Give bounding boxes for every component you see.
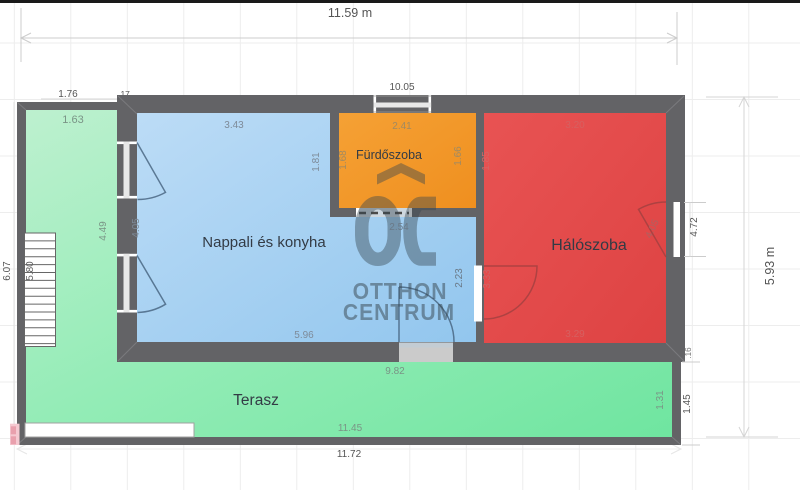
- svg-text:5.96: 5.96: [294, 330, 314, 341]
- svg-text:1.45: 1.45: [682, 394, 693, 414]
- svg-text:.16: .16: [684, 347, 693, 359]
- svg-text:3.29: 3.29: [565, 329, 585, 340]
- svg-text:11.45: 11.45: [338, 423, 363, 434]
- svg-text:5.80: 5.80: [25, 261, 36, 281]
- svg-text:3.33: 3.33: [482, 269, 493, 289]
- svg-text:2.54: 2.54: [389, 222, 409, 233]
- svg-text:Hálószoba: Hálószoba: [551, 237, 627, 254]
- svg-text:4.05: 4.05: [131, 218, 142, 238]
- svg-text:CENTRUM: CENTRUM: [343, 299, 455, 325]
- svg-text:11.72: 11.72: [337, 449, 362, 460]
- svg-text:Terasz: Terasz: [233, 392, 279, 409]
- svg-text:11.59 m: 11.59 m: [328, 6, 372, 20]
- svg-text:1.81: 1.81: [311, 152, 322, 172]
- svg-text:1.68: 1.68: [338, 150, 349, 170]
- svg-text:6.07: 6.07: [2, 261, 13, 281]
- svg-text:4.49: 4.49: [98, 221, 109, 241]
- svg-text:10.05: 10.05: [389, 82, 414, 93]
- svg-text:1.66: 1.66: [453, 146, 464, 166]
- svg-text:3.20: 3.20: [565, 120, 585, 131]
- svg-text:Fürdőszoba: Fürdőszoba: [356, 148, 422, 162]
- svg-text:9.82: 9.82: [385, 366, 405, 377]
- svg-text:1.31: 1.31: [655, 390, 666, 410]
- svg-text:3.43: 3.43: [224, 120, 244, 131]
- svg-text:5.93 m: 5.93 m: [763, 247, 777, 285]
- svg-text:1.85: 1.85: [481, 151, 492, 171]
- svg-text:4.72: 4.72: [689, 217, 700, 237]
- svg-text:2.41: 2.41: [392, 121, 412, 132]
- svg-text:1.76: 1.76: [58, 89, 78, 100]
- svg-text:1.63: 1.63: [62, 114, 83, 126]
- svg-text:2.23: 2.23: [454, 268, 465, 288]
- svg-text:Nappali és konyha: Nappali és konyha: [202, 234, 326, 251]
